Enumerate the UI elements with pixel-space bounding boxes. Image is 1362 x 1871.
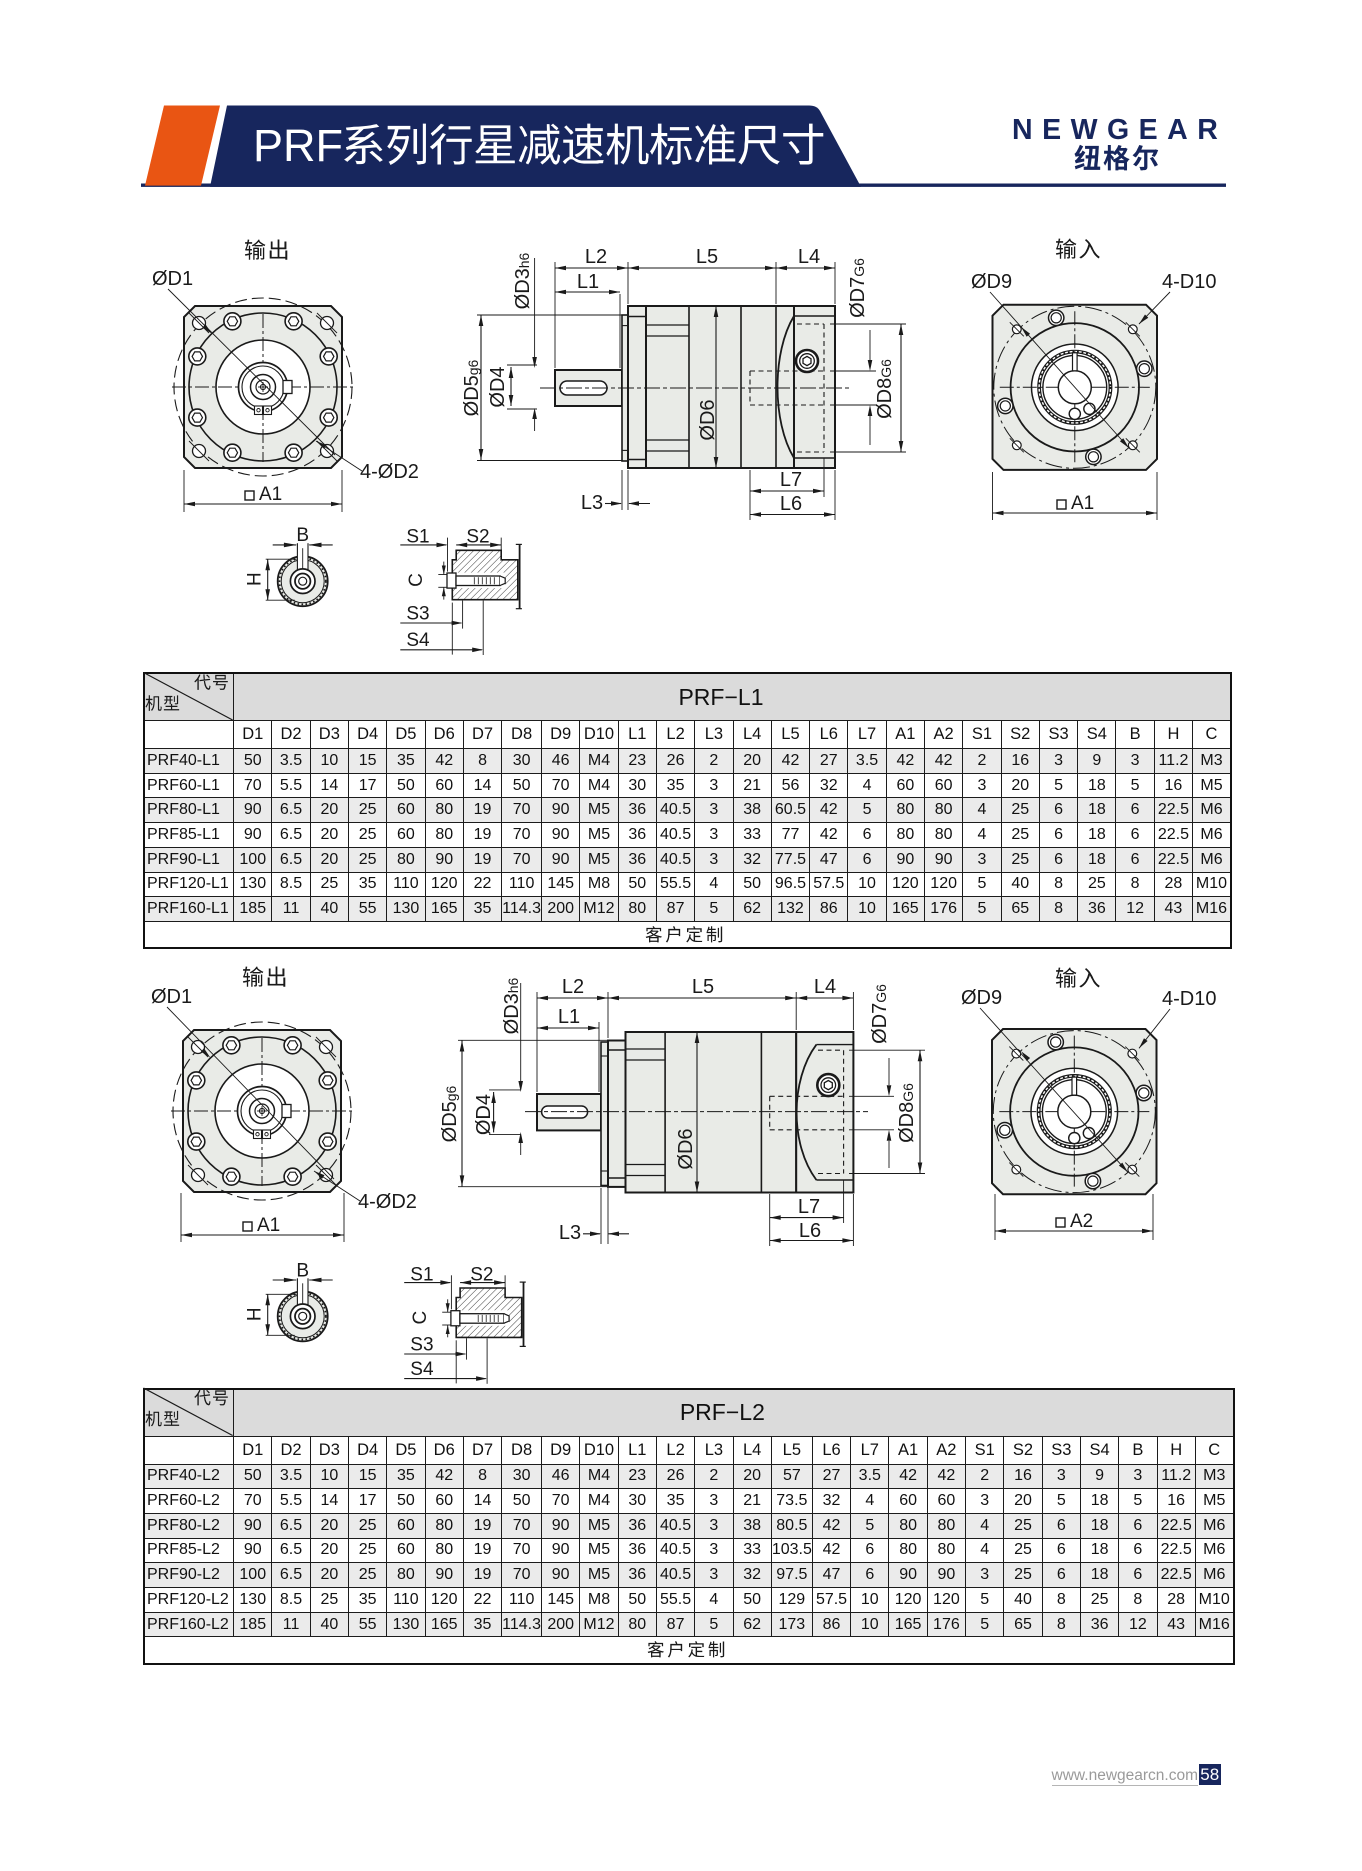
svg-text:L2: L2 <box>585 246 607 268</box>
svg-text:L6: L6 <box>780 493 802 515</box>
svg-text:L7: L7 <box>780 469 802 491</box>
svg-text:L4: L4 <box>798 246 820 268</box>
svg-text:S4: S4 <box>406 630 430 651</box>
svg-text:H: H <box>245 572 266 586</box>
svg-text:ØD8G6: ØD8G6 <box>896 1083 918 1143</box>
svg-text:A1: A1 <box>257 1215 280 1236</box>
svg-text:L4: L4 <box>814 976 836 998</box>
svg-text:ØD4: ØD4 <box>473 1094 495 1135</box>
svg-text:B: B <box>296 1260 309 1281</box>
svg-text:A2: A2 <box>1070 1211 1093 1232</box>
svg-text:A1: A1 <box>259 484 282 505</box>
svg-text:ØD1: ØD1 <box>152 268 193 290</box>
svg-text:4-ØD2: 4-ØD2 <box>358 1191 417 1213</box>
svg-text:L7: L7 <box>798 1196 820 1218</box>
svg-text:S2: S2 <box>466 527 489 548</box>
svg-text:ØD5g6: ØD5g6 <box>439 1085 461 1142</box>
svg-text:S3: S3 <box>406 604 429 625</box>
svg-text:L6: L6 <box>799 1220 821 1242</box>
svg-text:C: C <box>410 1311 431 1325</box>
svg-text:PRF: PRF <box>253 120 343 171</box>
svg-text:ØD9: ØD9 <box>971 271 1012 293</box>
svg-text:C: C <box>406 573 427 587</box>
svg-text:4-ØD2: 4-ØD2 <box>360 461 419 483</box>
svg-text:L5: L5 <box>692 976 714 998</box>
svg-text:4-D10: 4-D10 <box>1162 988 1216 1010</box>
svg-text:ØD3h6: ØD3h6 <box>512 252 534 309</box>
svg-text:L1: L1 <box>558 1006 580 1028</box>
svg-text:ØD7G6: ØD7G6 <box>847 258 869 318</box>
svg-text:A1: A1 <box>1071 493 1094 514</box>
svg-text:ØD5g6: ØD5g6 <box>461 359 483 416</box>
svg-text:S4: S4 <box>410 1359 434 1380</box>
svg-text:ØD3h6: ØD3h6 <box>501 977 523 1034</box>
svg-text:L2: L2 <box>562 976 584 998</box>
svg-text:4-D10: 4-D10 <box>1162 271 1216 293</box>
svg-text:S3: S3 <box>410 1335 433 1356</box>
svg-text:S1: S1 <box>406 527 429 548</box>
svg-text:L1: L1 <box>577 271 599 293</box>
svg-text:NEWGEAR: NEWGEAR <box>1012 114 1227 146</box>
svg-text:ØD7G6: ØD7G6 <box>869 984 891 1044</box>
svg-text:ØD4: ØD4 <box>487 366 509 407</box>
svg-text:S2: S2 <box>470 1264 493 1285</box>
svg-text:S1: S1 <box>410 1264 433 1285</box>
svg-text:L5: L5 <box>696 246 718 268</box>
svg-text:L3: L3 <box>581 492 603 514</box>
svg-text:B: B <box>296 525 309 546</box>
svg-text:ØD1: ØD1 <box>151 986 192 1008</box>
svg-text:ØD9: ØD9 <box>961 987 1002 1009</box>
svg-text:ØD6: ØD6 <box>697 399 719 440</box>
svg-text:ØD8G6: ØD8G6 <box>874 359 896 419</box>
svg-text:H: H <box>245 1307 266 1321</box>
svg-text:ØD6: ØD6 <box>675 1128 697 1169</box>
svg-text:L3: L3 <box>559 1222 581 1244</box>
